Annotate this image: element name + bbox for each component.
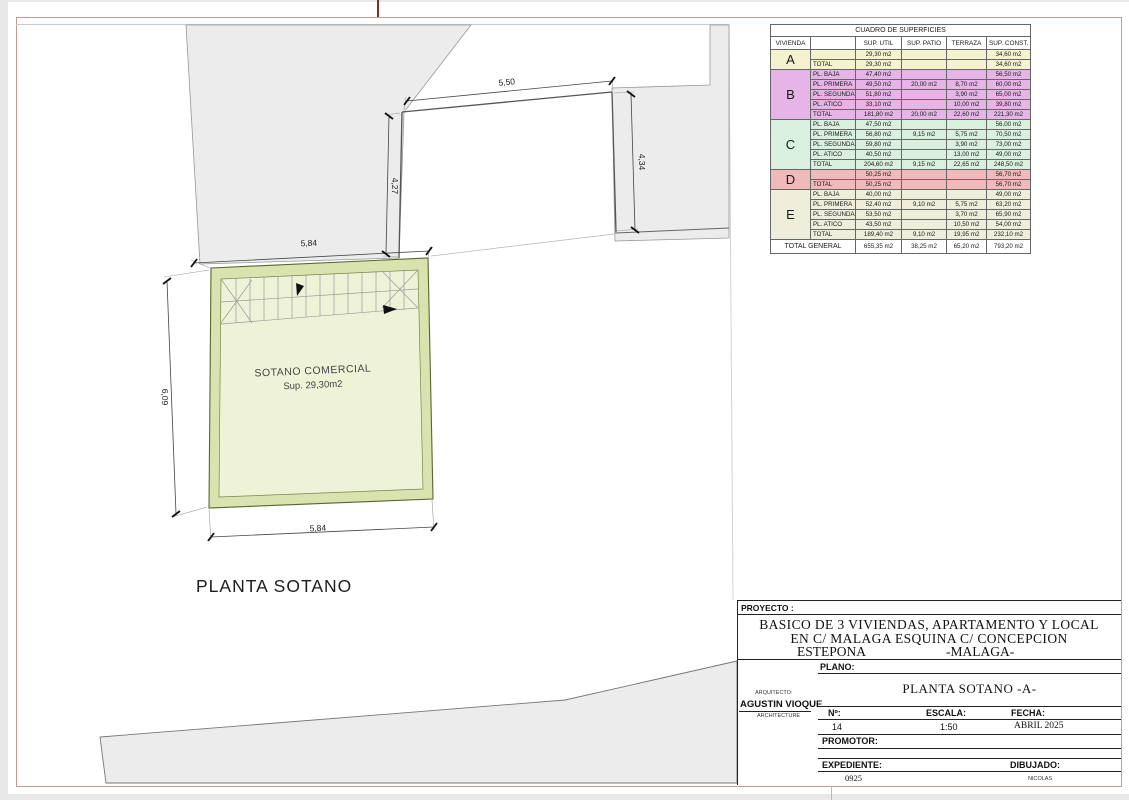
surface-value: 5,75 m2 xyxy=(947,130,987,140)
surfaces-table: CUADRO DE SUPERFICIESVIVIENDASUP. UTILSU… xyxy=(770,24,1031,254)
surface-value xyxy=(902,190,947,200)
arquitecto-label: ARQUITECTO: xyxy=(755,690,793,696)
surface-value: 49,50 m2 xyxy=(856,80,902,90)
surface-value: 221,30 m2 xyxy=(987,110,1031,120)
surface-value xyxy=(902,210,947,220)
vivienda-letter: B xyxy=(771,70,811,120)
surface-value: 54,00 m2 xyxy=(987,220,1031,230)
rule xyxy=(818,771,1121,772)
viewer-bottom-edge xyxy=(0,794,1129,800)
surface-value xyxy=(947,190,987,200)
viewer-left-edge xyxy=(0,0,8,800)
plano-value: PLANTA SOTANO -A- xyxy=(818,681,1121,697)
dibujado-label: DIBUJADO: xyxy=(1010,760,1060,770)
surface-value xyxy=(902,220,947,230)
surface-value: 8,70 m2 xyxy=(947,80,987,90)
surface-value: 34,60 m2 xyxy=(987,60,1031,70)
surface-value: 53,50 m2 xyxy=(856,210,902,220)
surface-value: 10,00 m2 xyxy=(947,100,987,110)
surface-value: 9,10 m2 xyxy=(902,200,947,210)
escala-label: ESCALA: xyxy=(926,708,966,718)
total-general-label: TOTAL GENERAL xyxy=(771,240,856,254)
surface-value xyxy=(947,180,987,190)
rule xyxy=(737,614,1121,615)
surface-value: 9,15 m2 xyxy=(902,130,947,140)
surface-value: 22,65 m2 xyxy=(947,160,987,170)
table-row: CPL. BAJA47,50 m256,00 m2 xyxy=(771,120,1031,130)
viewer-top-edge xyxy=(0,0,1129,2)
table-row: BPL. BAJA47,40 m256,50 m2 xyxy=(771,70,1031,80)
surface-value: 33,10 m2 xyxy=(856,100,902,110)
vivienda-letter: E xyxy=(771,190,811,240)
surface-value: 20,00 m2 xyxy=(902,110,947,120)
arquitecto-name: AGUSTIN VIOQUE xyxy=(740,699,822,710)
surface-value: 19,95 m2 xyxy=(947,230,987,240)
vivienda-letter: A xyxy=(771,50,811,70)
dibujado-value: NICOLAS xyxy=(1028,776,1052,782)
surface-value: 49,00 m2 xyxy=(987,190,1031,200)
project-title-city: ESTEPONA xyxy=(797,644,866,660)
rule xyxy=(737,600,1121,601)
surface-value: 189,40 m2 xyxy=(856,230,902,240)
rule xyxy=(818,673,1121,674)
plan-caption: PLANTA SOTANO xyxy=(196,576,352,597)
column-header xyxy=(811,37,856,50)
surface-value: 60,00 m2 xyxy=(987,80,1031,90)
surface-value: 9,10 m2 xyxy=(902,230,947,240)
rule xyxy=(818,706,1121,707)
top-fold-mark xyxy=(377,0,379,17)
surface-value: 43,50 m2 xyxy=(856,220,902,230)
surface-value xyxy=(947,60,987,70)
surface-value: 65,20 m2 xyxy=(947,240,987,254)
surface-value: 39,80 m2 xyxy=(987,100,1031,110)
surface-value: 22,60 m2 xyxy=(947,110,987,120)
escala-value: 1:50 xyxy=(940,722,958,732)
surface-value xyxy=(902,90,947,100)
floor-label: PL. SEGUNDA xyxy=(811,140,856,150)
surface-value xyxy=(902,180,947,190)
surface-value xyxy=(902,100,947,110)
surface-value: 20,00 m2 xyxy=(902,80,947,90)
bottom-divider-mark xyxy=(831,786,832,800)
promotor-label: PROMOTOR: xyxy=(822,736,878,746)
floor-label: PL. BAJA xyxy=(811,190,856,200)
table-row: EPL. BAJA40,00 m249,00 m2 xyxy=(771,190,1031,200)
surface-value xyxy=(902,150,947,160)
total-general-row: TOTAL GENERAL655,35 m238,25 m265,20 m279… xyxy=(771,240,1031,254)
surface-value: 50,25 m2 xyxy=(856,180,902,190)
numero-value: 14 xyxy=(832,722,842,732)
surface-value: 56,70 m2 xyxy=(987,180,1031,190)
surface-value: 655,35 m2 xyxy=(856,240,902,254)
surface-value: 47,50 m2 xyxy=(856,120,902,130)
floor-label xyxy=(811,50,856,60)
vivienda-letter: D xyxy=(771,170,811,190)
table-header-row: VIVIENDASUP. UTILSUP. PATIOTERRAZASUP. C… xyxy=(771,37,1031,50)
surface-value: 5,75 m2 xyxy=(947,200,987,210)
surface-value: 49,00 m2 xyxy=(987,150,1031,160)
surface-value: 56,00 m2 xyxy=(987,120,1031,130)
floor-label: PL. BAJA xyxy=(811,120,856,130)
column-header: SUP. CONST. xyxy=(987,37,1031,50)
plano-label: PLANO: xyxy=(820,662,855,672)
floor-label: PL. PRIMERA xyxy=(811,200,856,210)
surface-value xyxy=(902,120,947,130)
floor-label: PL. ATICO xyxy=(811,220,856,230)
expediente-value: 0925 xyxy=(845,773,862,783)
surface-value: 56,80 m2 xyxy=(856,130,902,140)
expediente-label: EXPEDIENTE: xyxy=(822,760,882,770)
floor-label: PL. PRIMERA xyxy=(811,130,856,140)
column-header: TERRAZA xyxy=(947,37,987,50)
table-row: A29,30 m234,60 m2 xyxy=(771,50,1031,60)
surface-value xyxy=(902,70,947,80)
rule xyxy=(818,748,1121,749)
surface-value: 40,00 m2 xyxy=(856,190,902,200)
table-row: D50,25 m256,70 m2 xyxy=(771,170,1031,180)
surface-value: 34,60 m2 xyxy=(987,50,1031,60)
surface-value: 50,25 m2 xyxy=(856,170,902,180)
surface-value: 10,50 m2 xyxy=(947,220,987,230)
rule xyxy=(818,719,1121,720)
arquitecto-sub: ARCHITECTURE xyxy=(757,713,800,719)
numero-label: Nº: xyxy=(828,708,841,718)
surface-value: 3,90 m2 xyxy=(947,140,987,150)
surface-value: 47,40 m2 xyxy=(856,70,902,80)
floor-label: PL. PRIMERA xyxy=(811,80,856,90)
surface-value: 63,20 m2 xyxy=(987,200,1031,210)
floor-label: PL. ATICO xyxy=(811,150,856,160)
surface-value: 3,90 m2 xyxy=(947,90,987,100)
surface-value xyxy=(902,60,947,70)
surface-value xyxy=(947,120,987,130)
surface-value xyxy=(947,50,987,60)
surface-value: 13,00 m2 xyxy=(947,150,987,160)
column-header: SUP. UTIL xyxy=(856,37,902,50)
rule xyxy=(818,734,1121,735)
floor-label: PL. SEGUNDA xyxy=(811,210,856,220)
project-title-province: -MALAGA- xyxy=(946,644,1014,660)
project-title-line2: EN C/ MALAGA ESQUINA C/ CONCEPCION xyxy=(737,631,1121,647)
surface-value: 56,70 m2 xyxy=(987,170,1031,180)
floor-label xyxy=(811,170,856,180)
surface-value: 59,80 m2 xyxy=(856,140,902,150)
surface-value: 29,30 m2 xyxy=(856,60,902,70)
floor-label: TOTAL xyxy=(811,180,856,190)
rule xyxy=(739,711,811,712)
fecha-value: ABRIL 2025 xyxy=(1014,721,1064,731)
table-title: CUADRO DE SUPERFICIES xyxy=(771,25,1031,37)
floor-label: PL. BAJA xyxy=(811,70,856,80)
surface-value: 73,00 m2 xyxy=(987,140,1031,150)
column-header: SUP. PATIO xyxy=(902,37,947,50)
surface-value: 65,00 m2 xyxy=(987,90,1031,100)
floor-label: TOTAL xyxy=(811,230,856,240)
vivienda-letter: C xyxy=(771,120,811,170)
surface-value: 65,90 m2 xyxy=(987,210,1031,220)
fecha-label: FECHA: xyxy=(1011,708,1045,718)
floor-label: PL. ATICO xyxy=(811,100,856,110)
surface-value xyxy=(902,50,947,60)
floor-label: TOTAL xyxy=(811,60,856,70)
sheet: { "plan": { "caption": "PLANTA SOTANO", … xyxy=(0,0,1129,800)
surface-value: 793,20 m2 xyxy=(987,240,1031,254)
surface-value: 38,25 m2 xyxy=(902,240,947,254)
floor-label: TOTAL xyxy=(811,160,856,170)
column-header: VIVIENDA xyxy=(771,37,811,50)
surface-value: 56,50 m2 xyxy=(987,70,1031,80)
rule xyxy=(737,659,1121,660)
proyecto-label: PROYECTO : xyxy=(741,603,794,613)
surface-value: 51,80 m2 xyxy=(856,90,902,100)
surface-value: 40,50 m2 xyxy=(856,150,902,160)
surface-value xyxy=(902,140,947,150)
surface-value: 248,50 m2 xyxy=(987,160,1031,170)
surface-value: 52,40 m2 xyxy=(856,200,902,210)
floor-label: TOTAL xyxy=(811,110,856,120)
surface-value: 232,10 m2 xyxy=(987,230,1031,240)
surface-value xyxy=(902,170,947,180)
rule xyxy=(818,758,1121,759)
surface-value: 70,50 m2 xyxy=(987,130,1031,140)
surface-value: 181,80 m2 xyxy=(856,110,902,120)
surface-value: 3,70 m2 xyxy=(947,210,987,220)
surface-value xyxy=(947,70,987,80)
surface-value xyxy=(947,170,987,180)
surface-value: 29,30 m2 xyxy=(856,50,902,60)
floor-label: PL. SEGUNDA xyxy=(811,90,856,100)
surface-value: 204,60 m2 xyxy=(856,160,902,170)
surface-value: 9,15 m2 xyxy=(902,160,947,170)
